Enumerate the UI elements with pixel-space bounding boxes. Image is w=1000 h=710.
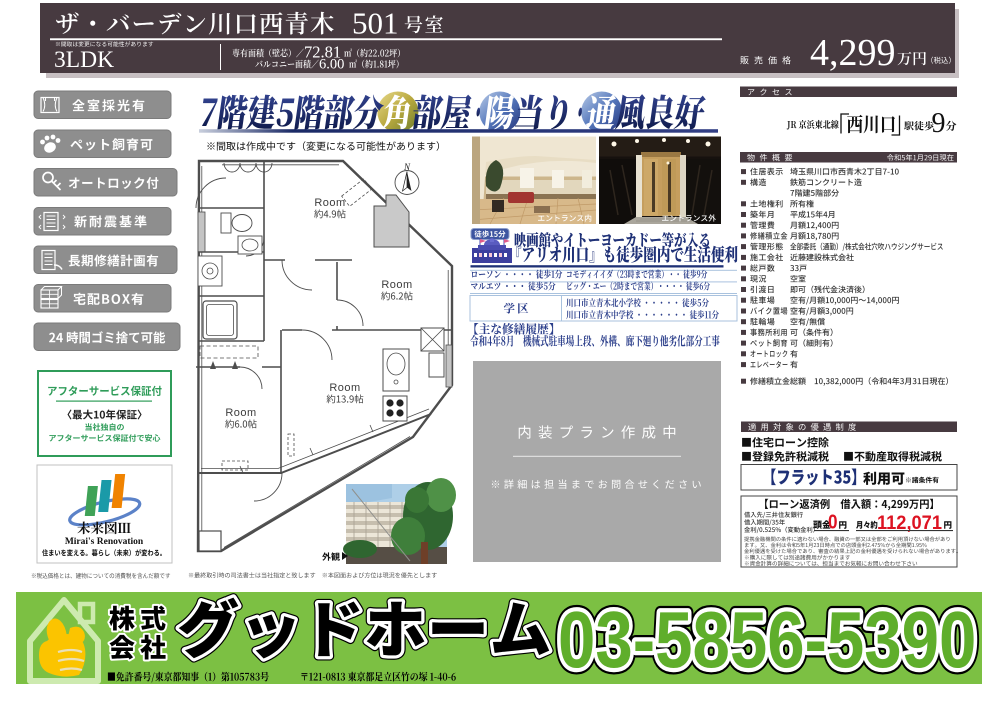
svg-text:9: 9 — [932, 108, 946, 139]
svg-text:501: 501 — [352, 6, 399, 41]
svg-text:3LDK: 3LDK — [54, 47, 114, 73]
svg-text:4,299: 4,299 — [810, 32, 896, 74]
svg-text:6.00: 6.00 — [319, 56, 344, 72]
svg-text:Room: Room — [225, 407, 256, 419]
svg-text:Room: Room — [329, 382, 360, 394]
svg-text:N: N — [403, 162, 411, 172]
svg-text:Mirai's Renovation: Mirai's Renovation — [65, 537, 144, 547]
svg-text:Room: Room — [314, 197, 345, 209]
svg-text:03-5856-5390: 03-5856-5390 — [558, 594, 976, 684]
svg-text:Room: Room — [381, 279, 412, 291]
